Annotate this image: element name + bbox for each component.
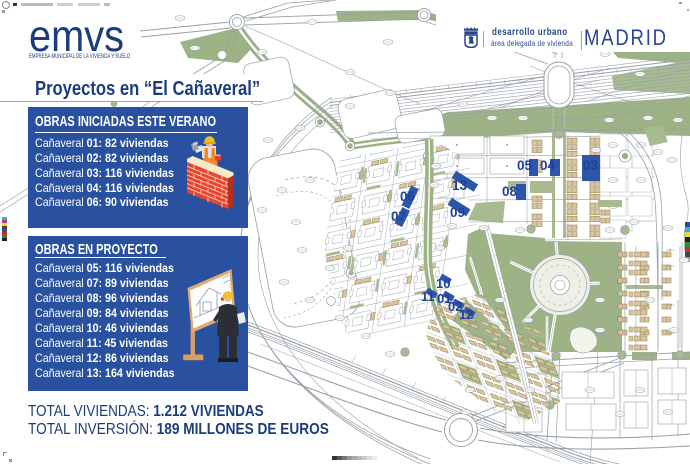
svg-text:10: 10 bbox=[436, 276, 450, 291]
svg-text:04: 04 bbox=[540, 158, 556, 173]
svg-text:08: 08 bbox=[502, 184, 518, 199]
svg-text:03: 03 bbox=[583, 158, 599, 173]
svg-text:09: 09 bbox=[450, 205, 465, 220]
svg-text:12: 12 bbox=[459, 307, 473, 322]
svg-text:06: 06 bbox=[400, 189, 416, 204]
svg-text:05: 05 bbox=[517, 158, 533, 173]
svg-text:13: 13 bbox=[452, 178, 468, 193]
svg-text:11: 11 bbox=[421, 289, 435, 304]
svg-text:07: 07 bbox=[391, 209, 406, 224]
